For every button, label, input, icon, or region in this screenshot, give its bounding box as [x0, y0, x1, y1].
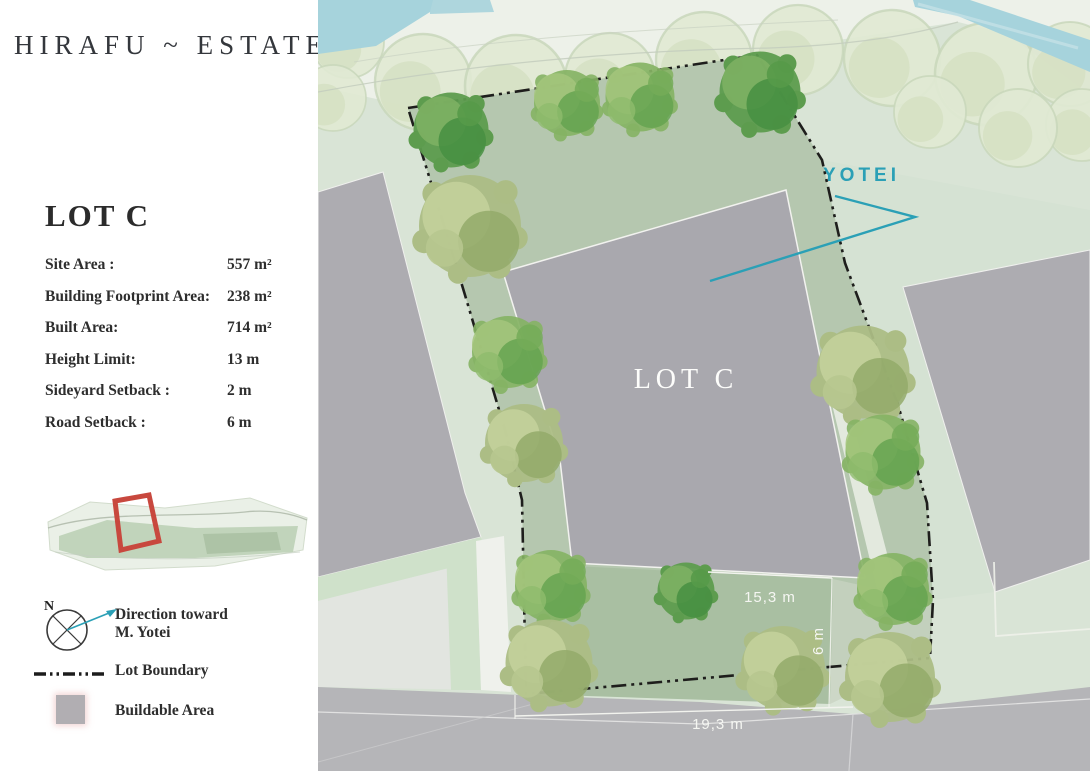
legend-direction-label: Direction toward M. Yotei [115, 606, 228, 642]
lot-boundary-sample-icon [33, 666, 107, 684]
lot-heading: LOT C [45, 198, 150, 234]
spec-row-height-limit: Height Limit: 13 m [45, 351, 295, 383]
spec-value: 13 m [227, 351, 259, 369]
spec-row-road-setback: Road Setback : 6 m [45, 414, 295, 446]
dimension-label-6: 6 m [810, 627, 827, 655]
spec-row-built-area: Built Area: 714 m² [45, 319, 295, 351]
spec-value: 238 m² [227, 288, 272, 306]
spec-label: Built Area: [45, 319, 118, 337]
spec-label: Building Footprint Area: [45, 288, 210, 306]
yotei-direction-arrow [67, 611, 114, 630]
locator-map [45, 488, 310, 585]
dimension-label-19-3: 19,3 m [692, 716, 744, 733]
legend-buildable-area-label: Buildable Area [115, 702, 214, 720]
spec-value: 557 m² [227, 256, 272, 274]
lot-brochure-page: HIRAFU ~ ESTATE LOT C Site Area : 557 m²… [0, 0, 1090, 771]
spec-row-footprint: Building Footprint Area: 238 m² [45, 288, 295, 320]
spec-table: Site Area : 557 m² Building Footprint Ar… [45, 256, 295, 445]
spec-value: 2 m [227, 382, 252, 400]
buildable-area-swatch-icon [56, 695, 85, 724]
spec-row-sideyard-setback: Sideyard Setback : 2 m [45, 382, 295, 414]
spec-value: 714 m² [227, 319, 272, 337]
brand-title: HIRAFU ~ ESTATE [14, 30, 310, 61]
lot-c-label: LOT C [634, 364, 739, 395]
yotei-label: YOTEI [823, 165, 900, 186]
spec-row-site-area: Site Area : 557 m² [45, 256, 295, 288]
spec-label: Sideyard Setback : [45, 382, 170, 400]
spec-label: Site Area : [45, 256, 114, 274]
spec-label: Road Setback : [45, 414, 146, 432]
dimension-label-15-3: 15,3 m [744, 589, 796, 606]
spec-label: Height Limit: [45, 351, 136, 369]
spec-value: 6 m [227, 414, 252, 432]
sidebar: HIRAFU ~ ESTATE LOT C Site Area : 557 m²… [0, 0, 318, 771]
compass-north-label: N [44, 599, 54, 614]
legend-lot-boundary-label: Lot Boundary [115, 662, 208, 680]
site-plan-map: 15,3 m 6 m 19,3 m YOTEI LOT C [318, 0, 1090, 771]
